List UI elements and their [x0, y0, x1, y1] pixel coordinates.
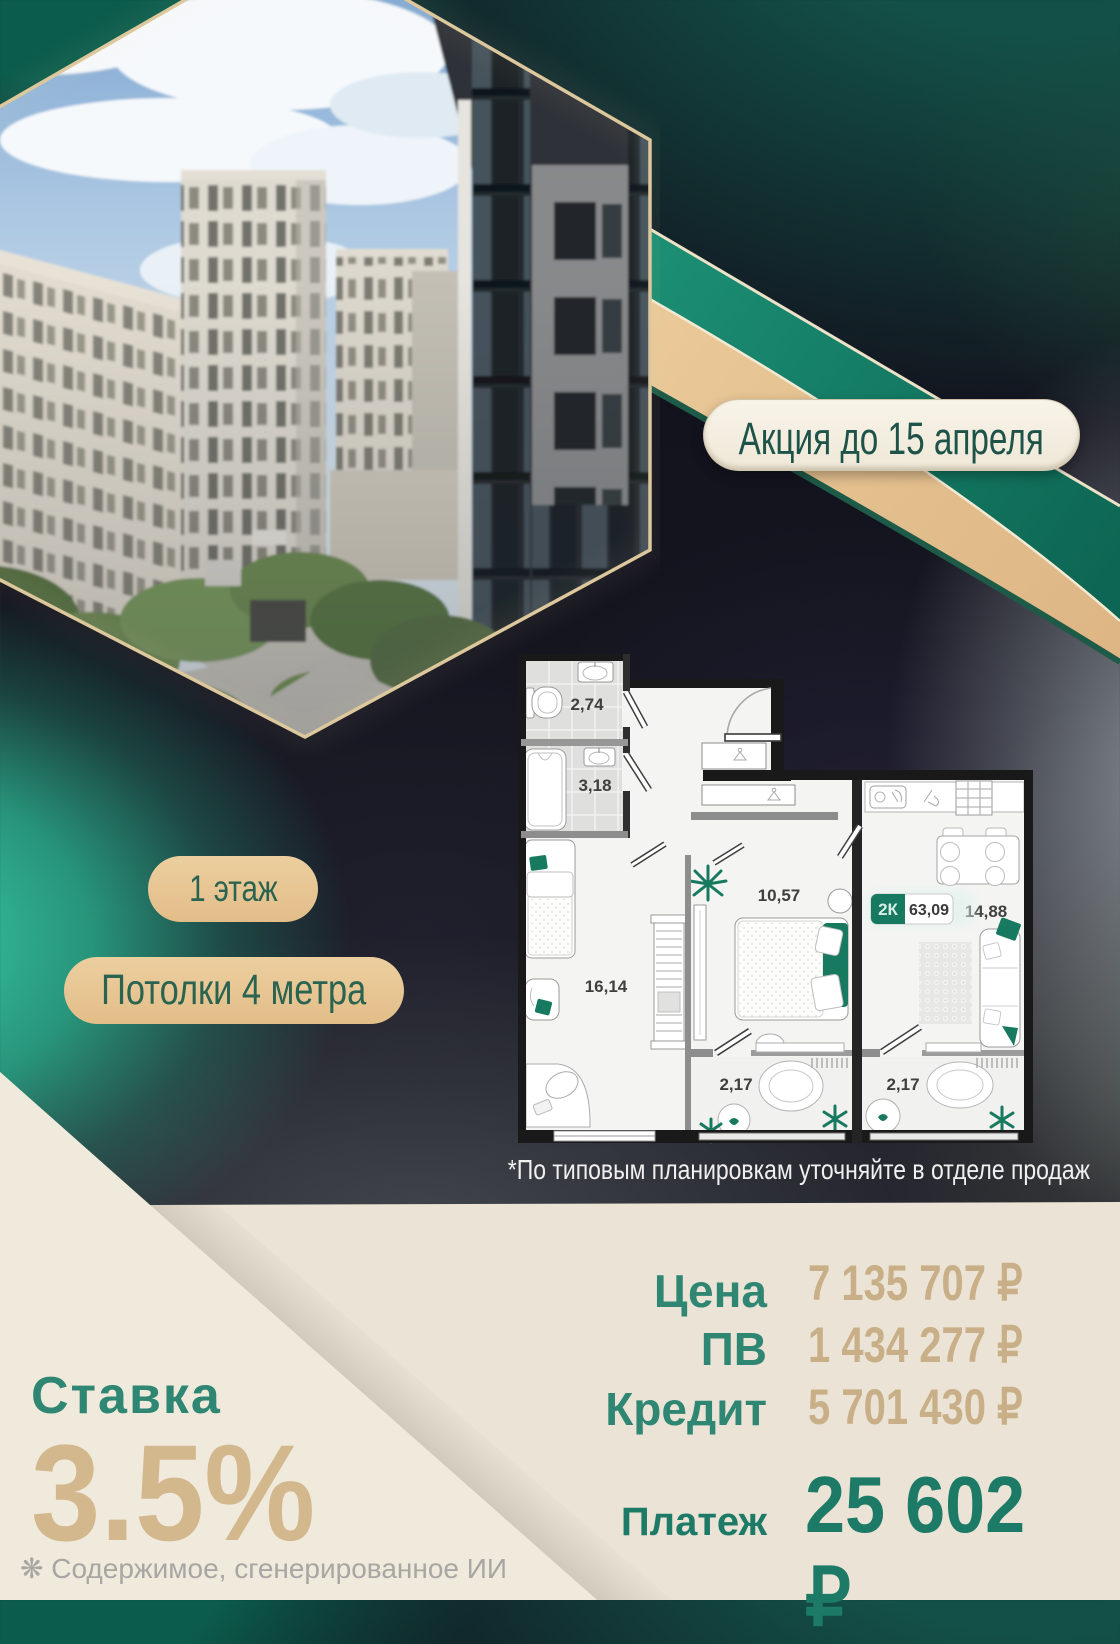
svg-text:2,74: 2,74 — [570, 695, 604, 714]
svg-text:3,18: 3,18 — [578, 776, 611, 795]
svg-text:16,14: 16,14 — [585, 977, 628, 996]
svg-text:63,09: 63,09 — [909, 902, 949, 919]
svg-text:10,57: 10,57 — [758, 886, 801, 905]
svg-text:2К: 2К — [878, 900, 898, 919]
